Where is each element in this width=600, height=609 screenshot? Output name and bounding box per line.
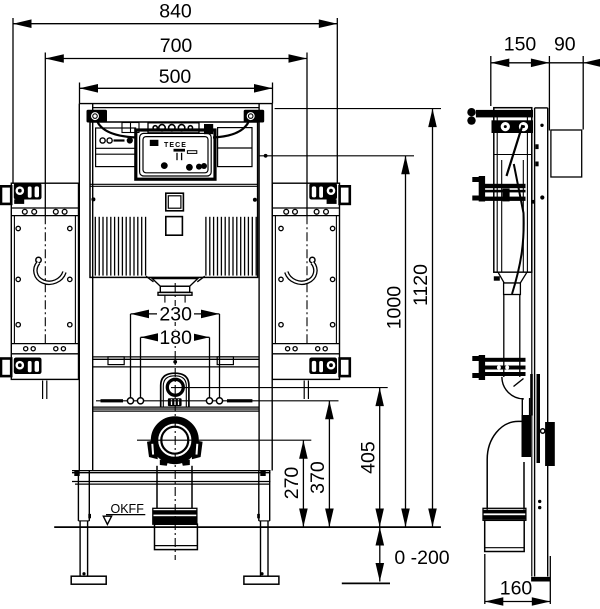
svg-text:TECE: TECE	[164, 142, 187, 149]
svg-text:370: 370	[307, 461, 329, 494]
svg-text:500: 500	[159, 66, 192, 88]
svg-text:90: 90	[554, 34, 576, 56]
svg-text:405: 405	[357, 441, 379, 474]
svg-text:150: 150	[504, 34, 537, 56]
svg-text:0 -200: 0 -200	[394, 547, 449, 569]
svg-text:270: 270	[281, 467, 303, 500]
svg-text:OKFF: OKFF	[111, 502, 145, 516]
svg-text:230: 230	[159, 304, 192, 326]
svg-text:1120: 1120	[410, 264, 432, 306]
svg-text:1000: 1000	[383, 286, 405, 330]
svg-text:700: 700	[160, 35, 193, 57]
svg-text:180: 180	[159, 327, 192, 349]
svg-text:160: 160	[500, 578, 533, 600]
svg-text:840: 840	[159, 0, 192, 22]
